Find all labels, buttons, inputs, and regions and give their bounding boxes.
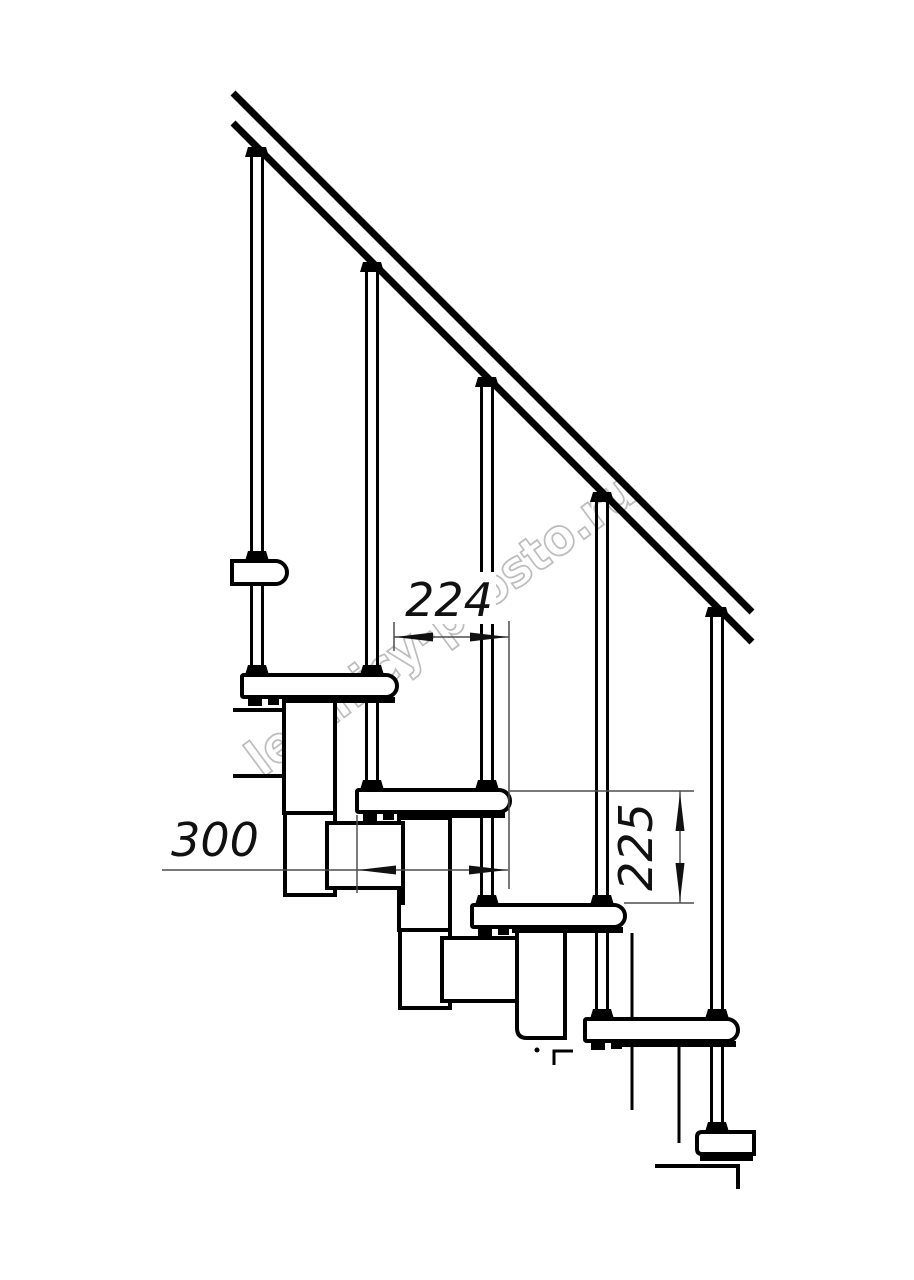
dimension-225-label: 225 — [609, 803, 663, 891]
tread-3-bracket — [363, 812, 377, 821]
tread-3 — [357, 790, 510, 812]
tread-2-underside-strip — [282, 697, 395, 703]
break-mark — [554, 1051, 573, 1065]
tread-6-cut — [697, 1132, 754, 1154]
dimension-224-label: 224 — [405, 573, 493, 627]
baluster-4 — [597, 497, 608, 1019]
tread-4-bracket — [498, 927, 509, 935]
tread-2-bracket — [248, 697, 262, 706]
module-column-v3 — [399, 818, 450, 930]
arrowhead-up — [676, 793, 685, 831]
tread-3-bracket — [383, 812, 394, 820]
tread-5-bracket — [591, 1041, 605, 1050]
module-column-v2 — [284, 700, 335, 813]
baluster-4-tread-4-collar — [590, 895, 614, 905]
module-column-v4 — [517, 930, 565, 1038]
baluster-1-tread-1-collar — [245, 551, 269, 561]
module-arm-4 — [442, 938, 518, 1001]
tread-6-underside-strip — [700, 1154, 753, 1161]
baluster-2-tread-2-collar — [360, 665, 384, 675]
tread-5-underside-strip — [620, 1041, 736, 1047]
module-arm-3 — [327, 823, 403, 888]
tread-3-underside-strip — [397, 812, 505, 818]
baluster-3-tread-3-collar — [475, 780, 499, 790]
tread-5 — [585, 1019, 738, 1041]
baluster-3-tread-4-collar — [475, 895, 499, 905]
tread-2 — [242, 675, 397, 697]
baluster-5-tread-5-collar — [705, 1009, 729, 1019]
arrowhead-right — [469, 866, 507, 875]
tread-4-bracket — [478, 927, 492, 936]
tread-4 — [472, 905, 625, 927]
dimension-300-label: 300 — [171, 813, 259, 867]
tread-1-cut — [232, 561, 287, 584]
baluster-2-tread-3-collar — [360, 780, 384, 790]
baluster-5-tread-6-collar — [705, 1122, 729, 1132]
staircase-technical-drawing-page: lestnicy-prosto.ru — [0, 0, 914, 1280]
staircase-drawing: lestnicy-prosto.ru — [0, 0, 914, 1280]
baluster-5 — [712, 612, 723, 1132]
baluster-3 — [482, 382, 493, 905]
break-dot — [535, 1048, 540, 1053]
arrowhead-down — [676, 863, 685, 901]
arrowhead-right — [470, 633, 508, 642]
tread-2-bracket — [268, 697, 279, 705]
baluster-1-tread-2-collar — [245, 665, 269, 675]
baluster-1 — [252, 152, 263, 675]
tread-5-bracket — [611, 1041, 622, 1049]
baluster-4-tread-5-collar — [590, 1009, 614, 1019]
tread-4-underside-strip — [512, 927, 623, 933]
dimension-225: 225 — [510, 791, 694, 903]
